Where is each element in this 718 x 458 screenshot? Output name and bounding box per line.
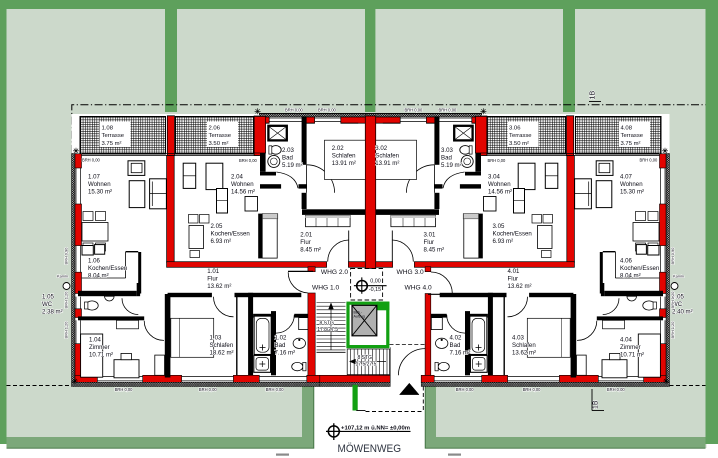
svg-text:8.04 m²: 8.04 m² bbox=[620, 272, 641, 279]
svg-text:15.30 m²: 15.30 m² bbox=[620, 188, 644, 195]
svg-text:1.03: 1.03 bbox=[210, 335, 222, 342]
svg-text:8.45 m²: 8.45 m² bbox=[424, 246, 445, 253]
svg-text:BRH 0,00: BRH 0,00 bbox=[439, 107, 457, 112]
svg-text:15.30 m²: 15.30 m² bbox=[88, 188, 112, 195]
svg-text:5.19 m²: 5.19 m² bbox=[441, 162, 462, 169]
svg-text:13.62 m²: 13.62 m² bbox=[512, 349, 536, 356]
svg-text:Terrasse: Terrasse bbox=[102, 133, 125, 139]
svg-text:+107,12 m ü.NN= ±0,00m: +107,12 m ü.NN= ±0,00m bbox=[341, 425, 410, 431]
svg-text:Flur: Flur bbox=[508, 275, 519, 282]
svg-text:Terrasse: Terrasse bbox=[209, 133, 232, 139]
svg-text:17.8/27.5: 17.8/27.5 bbox=[317, 327, 338, 333]
svg-text:6.93 m²: 6.93 m² bbox=[493, 238, 514, 245]
svg-text:3.50 m²: 3.50 m² bbox=[209, 141, 229, 147]
svg-text:BRH 0,00: BRH 0,00 bbox=[115, 387, 133, 392]
svg-text:BRH 0,90: BRH 0,90 bbox=[670, 247, 675, 265]
svg-text:3.05: 3.05 bbox=[493, 223, 505, 230]
svg-text:BRH 0,00: BRH 0,00 bbox=[82, 158, 100, 163]
svg-text:13.62 m²: 13.62 m² bbox=[207, 283, 231, 290]
svg-text:BRH 0,00: BRH 0,00 bbox=[285, 107, 303, 112]
svg-text:BRH 0,00: BRH 0,00 bbox=[239, 158, 257, 163]
svg-text:17.5/27.5: 17.5/27.5 bbox=[356, 362, 377, 368]
svg-text:4.08: 4.08 bbox=[621, 125, 633, 131]
svg-text:4.04: 4.04 bbox=[620, 337, 632, 344]
svg-text:BRH 1,20: BRH 1,20 bbox=[64, 321, 69, 339]
svg-text:13.91 m²: 13.91 m² bbox=[332, 160, 356, 167]
svg-text:1.04: 1.04 bbox=[89, 337, 101, 344]
svg-text:Schlafen: Schlafen bbox=[512, 342, 536, 349]
svg-text:8 STG: 8 STG bbox=[358, 355, 373, 361]
svg-text:Zimmer: Zimmer bbox=[620, 344, 641, 351]
svg-text:Wohnen: Wohnen bbox=[620, 181, 643, 188]
svg-text:7.16 m²: 7.16 m² bbox=[275, 349, 296, 356]
svg-text:Schlafen: Schlafen bbox=[332, 152, 356, 159]
svg-text:-0,15: -0,15 bbox=[369, 287, 381, 293]
svg-text:Schlafen: Schlafen bbox=[375, 152, 399, 159]
svg-text:Kamin: Kamin bbox=[673, 274, 684, 279]
svg-text:5.19 m²: 5.19 m² bbox=[282, 162, 303, 169]
svg-text:13.91 m²: 13.91 m² bbox=[375, 160, 399, 167]
svg-text:BRH 0,00: BRH 0,00 bbox=[640, 158, 658, 163]
svg-text:Bad: Bad bbox=[441, 154, 452, 161]
svg-text:Bad: Bad bbox=[450, 342, 461, 349]
svg-text:4.02: 4.02 bbox=[450, 335, 462, 342]
svg-text:8.45 m²: 8.45 m² bbox=[300, 246, 321, 253]
svg-text:Terrasse: Terrasse bbox=[509, 133, 532, 139]
svg-text:Wohnen: Wohnen bbox=[231, 181, 254, 188]
svg-text:2.04: 2.04 bbox=[231, 174, 243, 181]
svg-text:1.05: 1.05 bbox=[42, 294, 54, 301]
svg-text:Wohnen: Wohnen bbox=[488, 181, 511, 188]
svg-text:10.71 m²: 10.71 m² bbox=[620, 351, 644, 358]
svg-text:Zimmer: Zimmer bbox=[89, 344, 110, 351]
svg-text:Bad: Bad bbox=[282, 154, 293, 161]
svg-text:1B: 1B bbox=[588, 91, 597, 100]
svg-text:BRH 0,00: BRH 0,00 bbox=[523, 387, 541, 392]
svg-text:BRH 0,00: BRH 0,00 bbox=[318, 107, 336, 112]
svg-text:8 STG: 8 STG bbox=[320, 321, 335, 327]
svg-text:BRH 0,00: BRH 0,00 bbox=[488, 158, 506, 163]
svg-text:3.06: 3.06 bbox=[509, 125, 521, 131]
svg-text:1B: 1B bbox=[593, 400, 600, 409]
svg-text:3.03: 3.03 bbox=[441, 147, 453, 154]
svg-text:Kochen/Essen: Kochen/Essen bbox=[493, 230, 532, 237]
svg-text:1.08: 1.08 bbox=[102, 125, 114, 131]
svg-text:2.05: 2.05 bbox=[211, 223, 223, 230]
svg-text:18.62 m²: 18.62 m² bbox=[210, 349, 234, 356]
svg-text:BRH 0,00: BRH 0,00 bbox=[456, 387, 474, 392]
svg-text:BRH 1,20: BRH 1,20 bbox=[670, 321, 675, 339]
svg-text:3.04: 3.04 bbox=[488, 174, 500, 181]
svg-text:14.56 m²: 14.56 m² bbox=[231, 188, 255, 195]
svg-text:8.04 m²: 8.04 m² bbox=[88, 272, 109, 279]
svg-text:Bad: Bad bbox=[275, 342, 286, 349]
svg-text:2.06: 2.06 bbox=[209, 125, 221, 131]
svg-text:WHG 4.0: WHG 4.0 bbox=[405, 285, 432, 292]
svg-text:Kamin: Kamin bbox=[57, 274, 68, 279]
svg-text:Flur: Flur bbox=[207, 275, 218, 282]
svg-text:1.06: 1.06 bbox=[88, 258, 100, 265]
svg-text:3.75 m²: 3.75 m² bbox=[102, 141, 122, 147]
svg-text:3.01: 3.01 bbox=[424, 232, 436, 239]
svg-text:1.07: 1.07 bbox=[88, 174, 100, 181]
svg-text:0,00: 0,00 bbox=[370, 279, 381, 285]
svg-text:3.02: 3.02 bbox=[375, 145, 387, 152]
svg-text:WHG 3.0: WHG 3.0 bbox=[397, 269, 424, 276]
svg-text:WHG 2.0: WHG 2.0 bbox=[321, 269, 348, 276]
svg-text:14.56 m²: 14.56 m² bbox=[488, 188, 512, 195]
svg-text:Schlafen: Schlafen bbox=[210, 342, 234, 349]
svg-text:Terrasse: Terrasse bbox=[621, 133, 644, 139]
svg-text:WHG 1.0: WHG 1.0 bbox=[312, 285, 339, 292]
svg-text:BRH 0,00: BRH 0,00 bbox=[199, 387, 217, 392]
svg-text:Kochen/Essen: Kochen/Essen bbox=[620, 265, 659, 272]
svg-text:1.01: 1.01 bbox=[207, 268, 219, 275]
svg-text:MÖWENWEG: MÖWENWEG bbox=[338, 443, 402, 455]
svg-text:BRH 1,20: BRH 1,20 bbox=[64, 291, 69, 309]
svg-text:2.02: 2.02 bbox=[332, 145, 344, 152]
svg-text:BRH 0,00: BRH 0,00 bbox=[266, 387, 284, 392]
svg-text:3.50 m²: 3.50 m² bbox=[509, 141, 529, 147]
svg-text:Wohnen: Wohnen bbox=[88, 181, 111, 188]
svg-text:13.62 m²: 13.62 m² bbox=[508, 283, 532, 290]
svg-text:4.01: 4.01 bbox=[508, 268, 520, 275]
svg-text:2.38 m²: 2.38 m² bbox=[42, 308, 63, 315]
svg-text:WC: WC bbox=[42, 301, 53, 308]
svg-text:BRH 0,90: BRH 0,90 bbox=[64, 247, 69, 265]
svg-text:7.16 m²: 7.16 m² bbox=[450, 349, 471, 356]
svg-text:4.07: 4.07 bbox=[620, 174, 632, 181]
svg-text:1.02: 1.02 bbox=[275, 335, 287, 342]
svg-text:BRH 1,20: BRH 1,20 bbox=[670, 291, 675, 309]
svg-text:3.75 m²: 3.75 m² bbox=[621, 141, 641, 147]
svg-text:BRH 0,00: BRH 0,00 bbox=[607, 387, 625, 392]
svg-text:BRH 0,00: BRH 0,00 bbox=[405, 107, 423, 112]
svg-text:2.40 m²: 2.40 m² bbox=[672, 308, 693, 315]
svg-text:10.71 m²: 10.71 m² bbox=[89, 351, 113, 358]
svg-text:Flur: Flur bbox=[424, 239, 435, 246]
svg-text:2.03: 2.03 bbox=[282, 147, 294, 154]
svg-text:6.93 m²: 6.93 m² bbox=[211, 238, 232, 245]
svg-text:4.03: 4.03 bbox=[512, 335, 524, 342]
svg-text:2.01: 2.01 bbox=[300, 232, 312, 239]
svg-text:Kochen/Essen: Kochen/Essen bbox=[88, 265, 127, 272]
svg-text:Flur: Flur bbox=[300, 239, 311, 246]
svg-text:Kochen/Essen: Kochen/Essen bbox=[211, 230, 250, 237]
svg-text:Aufzug: Aufzug bbox=[354, 315, 365, 319]
svg-text:4.06: 4.06 bbox=[620, 258, 632, 265]
